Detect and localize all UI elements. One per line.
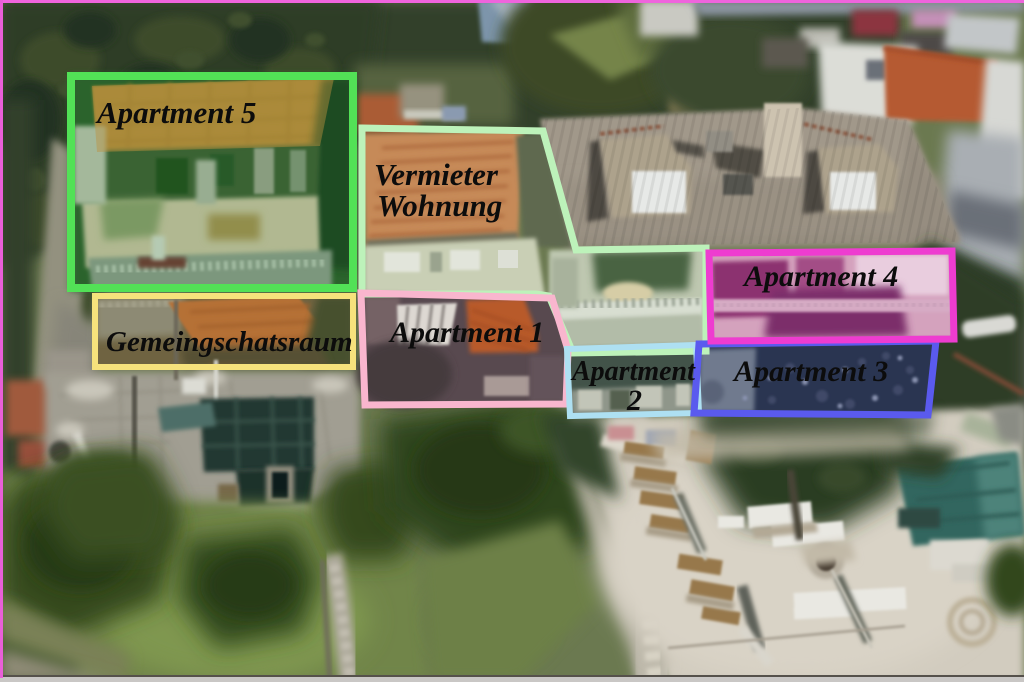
- svg-text:Apartment: Apartment: [570, 356, 696, 387]
- svg-text:Wohnung: Wohnung: [377, 188, 502, 223]
- svg-text:Vermieter: Vermieter: [374, 157, 499, 192]
- svg-text:Apartment 5: Apartment 5: [95, 95, 256, 130]
- svg-text:Apartment 4: Apartment 4: [742, 260, 898, 293]
- svg-text:2: 2: [626, 384, 642, 417]
- svg-text:Apartment 1: Apartment 1: [388, 316, 544, 349]
- svg-text:Gemeingschatsraum: Gemeingschatsraum: [106, 326, 353, 358]
- svg-text:Apartment 3: Apartment 3: [732, 355, 888, 388]
